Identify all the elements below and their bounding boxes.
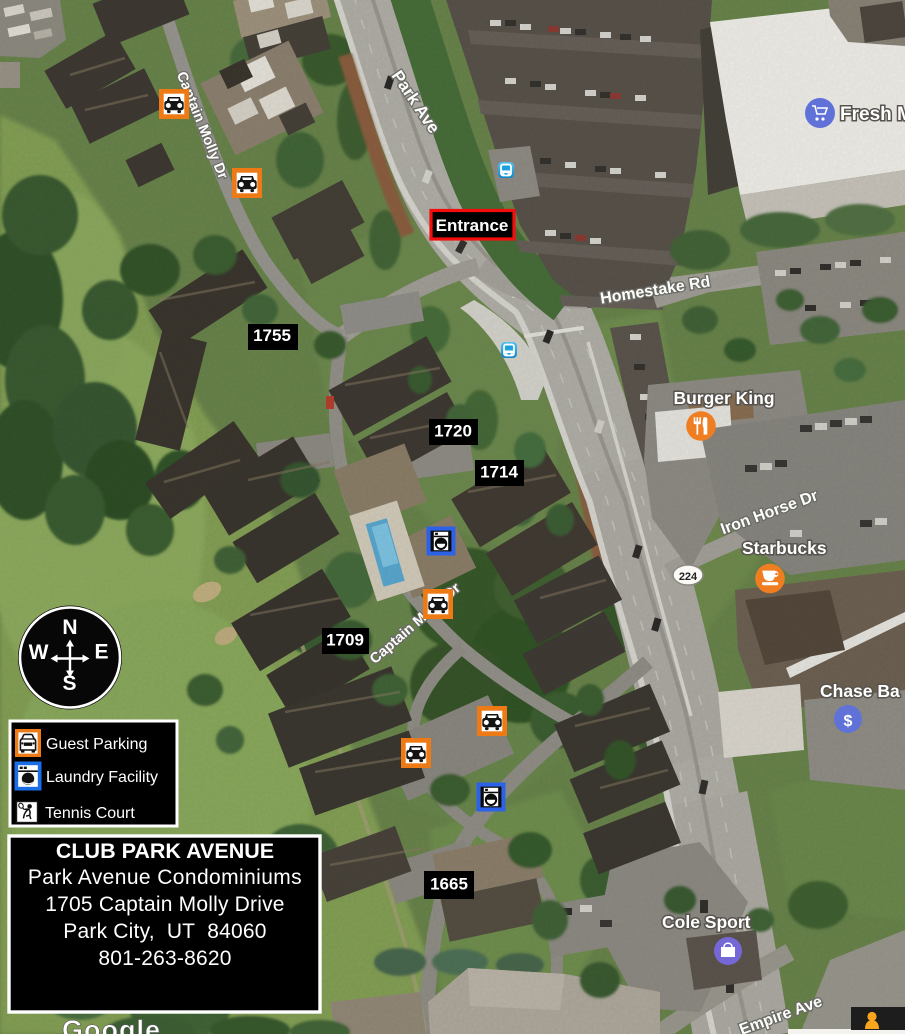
svg-text:Fresh M: Fresh M [840,104,905,125]
svg-text:Guest Parking: Guest Parking [46,736,147,753]
svg-text:Entrance: Entrance [436,216,509,235]
svg-text:Chase Ba: Chase Ba [820,681,900,701]
svg-text:Park Avenue Condominiums: Park Avenue Condominiums [28,866,302,889]
svg-text:801-263-8620: 801-263-8620 [98,947,231,970]
svg-text:Burger King: Burger King [673,388,774,408]
svg-text:N: N [62,616,77,639]
svg-text:1714: 1714 [480,463,518,482]
svg-text:Cole Sport: Cole Sport [662,912,751,932]
svg-text:1709: 1709 [326,631,364,650]
svg-text:W: W [29,641,49,664]
svg-text:Google: Google [62,1015,161,1034]
svg-text:Park City, UT 84060: Park City, UT 84060 [63,920,266,943]
svg-text:CLUB PARK AVENUE: CLUB PARK AVENUE [56,839,274,863]
svg-text:E: E [94,641,108,664]
svg-text:224: 224 [679,571,698,583]
svg-text:1755: 1755 [253,326,291,345]
svg-text:Tennis Court: Tennis Court [45,805,135,822]
svg-text:1720: 1720 [434,422,472,441]
svg-text:1665: 1665 [430,875,468,894]
svg-text:1705 Captain Molly Drive: 1705 Captain Molly Drive [45,893,284,916]
svg-text:Laundry Facility: Laundry Facility [46,769,158,786]
svg-text:Starbucks: Starbucks [742,538,827,558]
svg-text:$: $ [844,713,853,730]
